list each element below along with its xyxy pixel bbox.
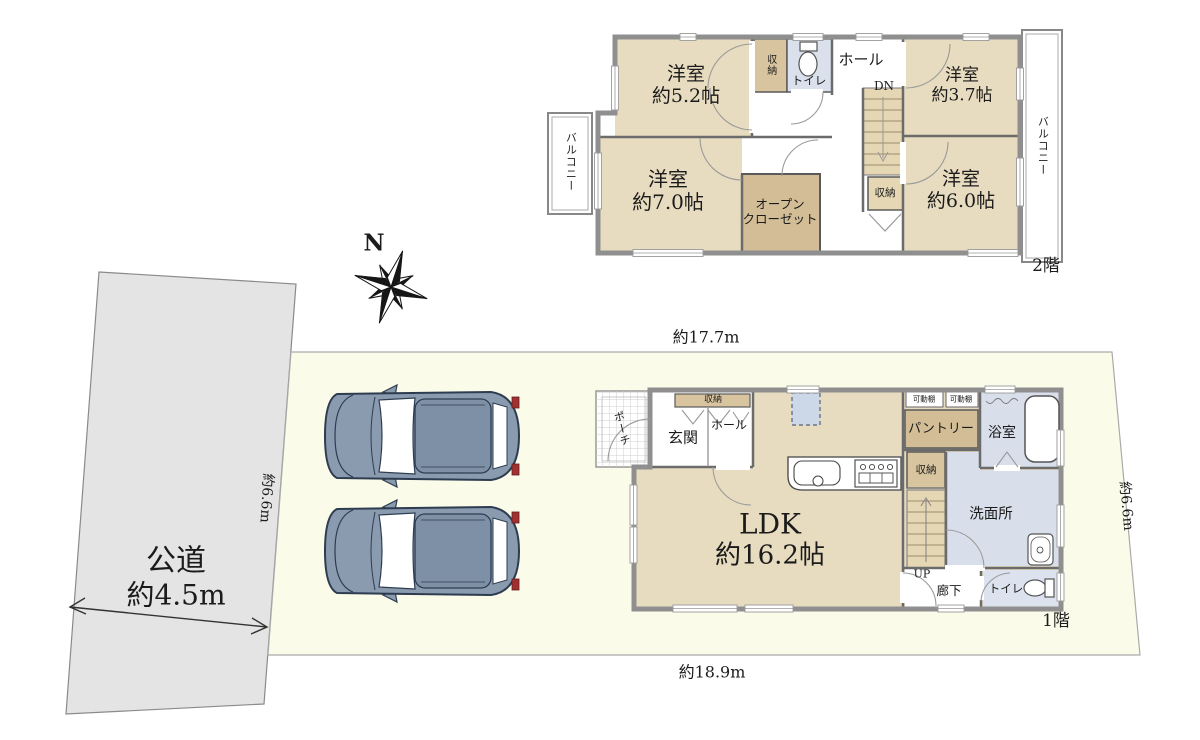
room-5-2-name: 洋室 xyxy=(652,63,720,85)
open-closet-line2: クローゼット xyxy=(742,212,817,227)
toilet-1f-label: トイレ xyxy=(989,582,1024,595)
dimension-bottom: 約18.9m xyxy=(679,664,746,683)
dn-label: DN xyxy=(874,80,894,94)
bathtub-icon xyxy=(1025,396,1059,462)
room-6-0-size: 約6.0帖 xyxy=(927,190,995,212)
kitchen-counter xyxy=(788,457,901,490)
refrigerator-space xyxy=(792,393,820,425)
open-closet-label: オープン クローゼット xyxy=(742,198,817,227)
road-label: 公道 約4.5m xyxy=(126,544,225,611)
floorplan-image: N 約17.7m 約18.9m 約6.6m 約6.6m 公道 約4.5m 洋室 … xyxy=(0,0,1200,740)
storage-top-label: 収納 xyxy=(764,54,776,76)
floor1-label: 1階 xyxy=(1042,612,1070,632)
road-label-line2: 約4.5m xyxy=(126,579,225,611)
hall-2f-label: ホール xyxy=(838,51,883,68)
floorplan-graphics xyxy=(0,0,1200,740)
room-5-2-size: 約5.2帖 xyxy=(652,85,720,107)
washroom-sink-icon xyxy=(1028,534,1053,565)
dimension-road-depth: 約6.6m xyxy=(256,473,276,524)
corridor-label: 廊下 xyxy=(936,584,961,599)
entrance-label: 玄関 xyxy=(668,429,698,446)
compass-icon xyxy=(343,239,439,335)
toilet-icon-1f xyxy=(1024,579,1054,597)
storage-mid-label: 収納 xyxy=(916,464,937,476)
balcony-right-label: バルコニー xyxy=(1036,116,1049,176)
up-label: UP xyxy=(914,569,931,582)
shelf-right-label: 可動棚 xyxy=(950,396,973,405)
dimension-top: 約17.7m xyxy=(673,329,740,348)
storage-entrance-label: 収納 xyxy=(704,395,722,405)
floor2-label: 2階 xyxy=(1032,257,1060,277)
toilet-icon-2f xyxy=(799,42,817,76)
ldk-label: LDK 約16.2帖 xyxy=(715,509,825,572)
stairs-up xyxy=(907,490,945,568)
room-7-0-label: 洋室 約7.0帖 xyxy=(632,168,704,214)
room-3-7-name: 洋室 xyxy=(931,66,992,86)
room-7-0-name: 洋室 xyxy=(632,168,704,191)
room-3-7-label: 洋室 約3.7帖 xyxy=(931,66,992,105)
bath-label: 浴室 xyxy=(988,425,1016,441)
road-label-line1: 公道 xyxy=(126,544,225,579)
open-closet-line1: オープン xyxy=(742,198,817,213)
room-3-7-size: 約3.7帖 xyxy=(931,86,992,106)
toilet-2f-label: トイレ xyxy=(792,74,827,87)
room-6-0-name: 洋室 xyxy=(927,168,995,190)
floor1-plan-shape xyxy=(596,386,1064,612)
floor2-plan-shape xyxy=(548,30,1062,262)
room-6-0-label: 洋室 約6.0帖 xyxy=(927,168,995,212)
ldk-size: 約16.2帖 xyxy=(715,541,825,571)
pantry-label: パントリー xyxy=(908,421,974,436)
room-5-2-label: 洋室 約5.2帖 xyxy=(652,63,720,107)
stove-icon xyxy=(855,460,897,487)
washroom-label: 洗面所 xyxy=(969,507,1013,524)
compass-north-label: N xyxy=(363,231,384,258)
stairs-down xyxy=(863,88,903,175)
balcony-left-label: バルコニー xyxy=(564,132,577,192)
car-icon-2 xyxy=(325,500,519,602)
storage-stairs-label: 収納 xyxy=(875,187,896,199)
car-icon-1 xyxy=(325,385,519,487)
room-7-0-size: 約7.0帖 xyxy=(632,191,704,214)
ldk-name: LDK xyxy=(715,509,825,541)
hall-1f-label: ホール xyxy=(711,419,747,433)
shelf-left-label: 可動棚 xyxy=(913,396,936,405)
